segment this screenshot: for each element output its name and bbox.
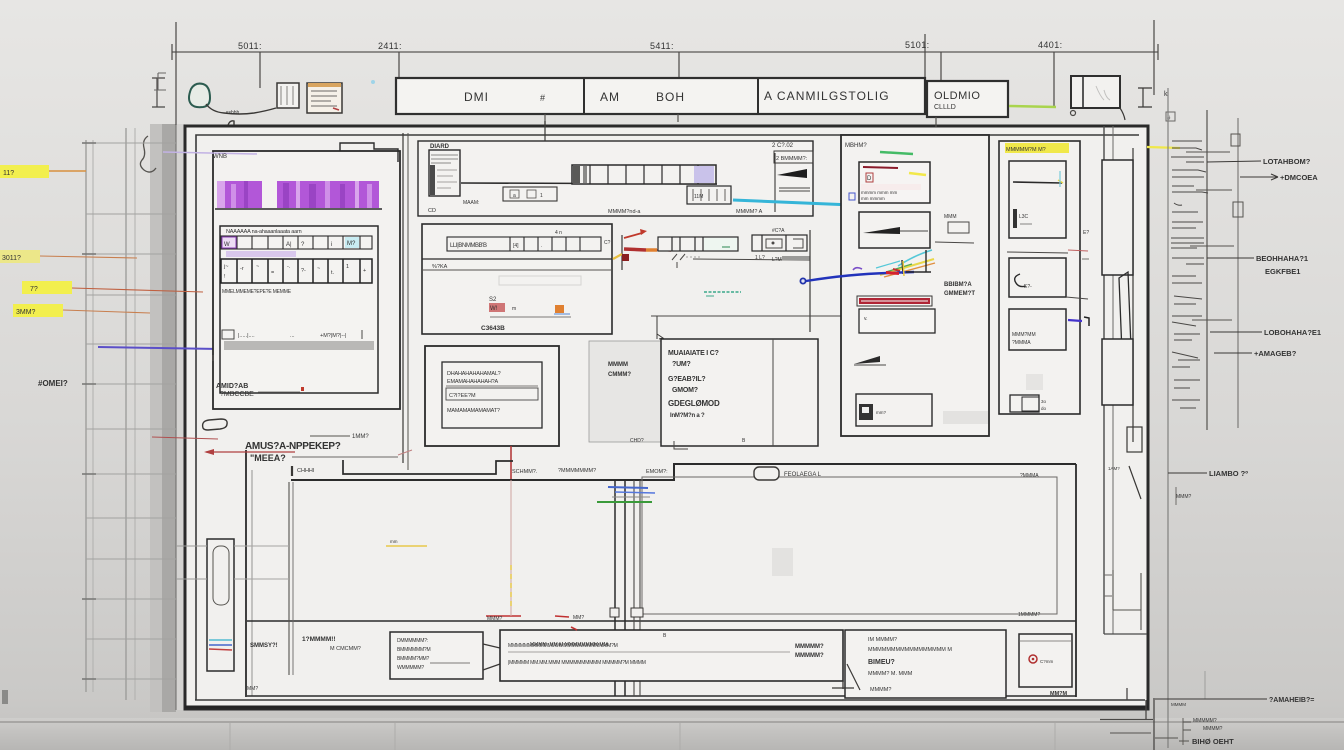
svg-text:L?M: L?M: [772, 257, 782, 263]
svg-text:MMMM? A: MMMM? A: [736, 209, 763, 215]
svg-text:LOBOHAHA?E1: LOBOHAHA?E1: [1264, 328, 1321, 337]
svg-text:7?: 7?: [30, 286, 38, 293]
svg-text:GDEGLØMOD: GDEGLØMOD: [668, 399, 720, 408]
svg-text:5011:: 5011:: [238, 41, 262, 51]
svg-text:CHHHI: CHHHI: [297, 468, 315, 474]
svg-text:CLLLD: CLLLD: [934, 104, 956, 111]
svg-text:2 BMMMM?:: 2 BMMMM?:: [776, 156, 808, 162]
svg-text:?-: ?-: [301, 268, 306, 274]
svg-text:MMMM: MMMM: [1171, 702, 1186, 707]
svg-text:[4]: [4]: [513, 243, 519, 249]
svg-text:1MM?: 1MM?: [352, 434, 369, 440]
svg-text:sshhh: sshhh: [226, 110, 240, 116]
svg-text:mm: mm: [390, 539, 398, 544]
svg-text:MMMMMMMMMMMMMMMMM M: MMMMMMMMMMMMMMMMM M: [868, 647, 952, 653]
svg-text:MMM?MM: MMM?MM: [1012, 332, 1036, 338]
svg-text:1: 1: [540, 193, 543, 199]
svg-text:=: =: [271, 270, 274, 276]
svg-text:|MMMMM MM.MM.MMM MMMMMMMMMM M: |MMMMM MM.MM.MMM MMMMMMMMMM MMMMM?M MMMM: [508, 660, 646, 666]
svg-text:MUAIAIATE I C?: MUAIAIATE I C?: [668, 350, 719, 357]
svg-text:11?: 11?: [3, 170, 14, 177]
svg-text:AM: AM: [600, 90, 620, 104]
svg-text:%?KA: %?KA: [432, 264, 448, 270]
svg-text:BMMMMMM?M: BMMMMMM?M: [397, 647, 431, 653]
svg-text:mmmm mmm mm: mmmm mmm mm: [861, 190, 897, 195]
svg-text:DHAHAHAHAHAMAL?: DHAHAHAHAHAMAL?: [447, 371, 501, 377]
svg-text:+: +: [363, 268, 366, 274]
svg-text:j~: j~: [223, 264, 228, 270]
svg-text:BEOHHAHA?1: BEOHHAHA?1: [1256, 254, 1308, 263]
svg-text:a: a: [513, 193, 516, 199]
svg-text:C?: C?: [604, 240, 611, 246]
svg-text:M CMCMM?: M CMCMM?: [330, 646, 361, 652]
svg-text:~: ~: [256, 264, 259, 270]
svg-text:MM?: MM?: [573, 615, 584, 621]
svg-text:MMMM?nd-a: MMMM?nd-a: [608, 209, 641, 215]
svg-text:3011?: 3011?: [2, 255, 21, 262]
svg-text:MMMM: MMMM: [608, 362, 628, 368]
svg-text:MBHM?: MBHM?: [845, 143, 867, 149]
svg-text:G?EAB?IL?: G?EAB?IL?: [668, 376, 705, 383]
svg-text:-r: -r: [240, 266, 244, 272]
svg-text:MM?M: MM?M: [1050, 691, 1068, 697]
svg-text:+M?|M?|--|: +M?|M?|--|: [320, 333, 346, 339]
svg-text:SCHMM?.: SCHMM?.: [512, 469, 538, 475]
svg-text:MMMM? M. MMM: MMMM? M. MMM: [868, 671, 913, 677]
svg-text:5101:: 5101:: [905, 40, 930, 50]
svg-text:C3643B: C3643B: [481, 325, 505, 332]
svg-text:WNB: WNB: [213, 154, 227, 160]
svg-text:+DMCOEA: +DMCOEA: [1280, 173, 1318, 182]
svg-text:#C?A: #C?A: [772, 228, 785, 234]
svg-text:4401:: 4401:: [1038, 40, 1063, 50]
svg-text:DIARD: DIARD: [430, 144, 450, 150]
svg-text:C?I?EE?M: C?I?EE?M: [449, 393, 476, 399]
svg-text:?AMAHEIB?=: ?AMAHEIB?=: [1269, 697, 1314, 704]
svg-text:MM?: MM?: [247, 686, 258, 692]
svg-text:CHD?: CHD?: [630, 438, 644, 444]
svg-text:"MEEA?: "MEEA?: [250, 453, 286, 463]
svg-text:1 L?: 1 L?: [755, 255, 765, 261]
svg-text:MAAM:: MAAM:: [463, 200, 479, 206]
svg-text:E?: E?: [1083, 230, 1089, 236]
svg-text:EGKFBE1: EGKFBE1: [1265, 267, 1300, 276]
svg-text:OLDMIO: OLDMIO: [934, 90, 980, 102]
svg-text:E?-: E?-: [1024, 284, 1032, 290]
svg-text:v.: v.: [864, 316, 868, 322]
svg-text:LIAMBO ?º: LIAMBO ?º: [1209, 469, 1248, 478]
svg-text:GMMEM?T: GMMEM?T: [944, 291, 975, 297]
svg-text:BOH: BOH: [656, 90, 685, 104]
svg-text:?UM?: ?UM?: [672, 361, 691, 368]
svg-text:11M: 11M: [694, 194, 703, 200]
svg-text:EMAMAHAHAHAH?A: EMAMAHAHAHAH?A: [447, 379, 499, 385]
svg-text:mm mmmm: mm mmmm: [861, 196, 885, 201]
svg-text:MMELMMEME?EPE?E MEMME: MMELMMEME?EPE?E MEMME: [222, 289, 292, 295]
svg-text:MMMMM?: MMMMM?: [1193, 718, 1217, 724]
svg-text:1: 1: [346, 264, 349, 270]
svg-text:EMOM?:: EMOM?:: [646, 469, 668, 475]
svg-text:A|: A|: [286, 242, 292, 248]
svg-text:MMMMM?: MMMMM?: [795, 644, 824, 650]
svg-text:IM MMMM?: IM MMMM?: [868, 637, 897, 643]
svg-text:?MBCCBE: ?MBCCBE: [220, 391, 254, 398]
svg-text:NAAAAAA na-ahaaanlaaata aarn: NAAAAAA na-ahaaanlaaata aarn: [226, 229, 302, 235]
svg-text:t.: t.: [331, 270, 335, 276]
svg-text:.: .: [541, 243, 542, 249]
svg-text:WMMMMM?: WMMMMM?: [397, 665, 424, 671]
svg-text:MMMM?: MMMM?: [870, 687, 891, 693]
svg-text:CD: CD: [428, 208, 436, 214]
svg-text:AMUS?A-NPPEKEP?: AMUS?A-NPPEKEP?: [245, 441, 341, 452]
svg-text:MMMMM?: MMMMM?: [795, 653, 824, 659]
svg-text:?MMMA: ?MMMA: [1020, 473, 1039, 479]
svg-text:5411:: 5411:: [650, 41, 674, 51]
svg-text:A CANMILGSTOLIG: A CANMILGSTOLIG: [764, 89, 890, 103]
svg-text:BBIBM?A: BBIBM?A: [944, 282, 972, 288]
svg-text:SMMSY?!: SMMSY?!: [250, 643, 278, 649]
svg-text:3o: 3o: [1041, 399, 1047, 404]
svg-text:InM?M?n a ?: InM?M?n a ?: [670, 413, 705, 419]
svg-text:?MMMMMMM?: ?MMMMMMM?: [558, 468, 596, 474]
svg-text:MAMAMAMAMAMAT?: MAMAMAMAMAMAT?: [447, 408, 500, 414]
svg-text:BIMEU?: BIMEU?: [868, 659, 895, 666]
svg-text:W: W: [224, 242, 230, 248]
svg-text:C?mm: C?mm: [1040, 659, 1054, 664]
svg-text:-.: -.: [287, 264, 291, 270]
svg-text:m: m: [512, 306, 516, 312]
svg-text:D: D: [867, 176, 872, 182]
svg-text:2411:: 2411:: [378, 41, 402, 51]
svg-text:GMOM?: GMOM?: [672, 387, 698, 394]
svg-text:MMM?: MMM?: [1176, 494, 1191, 500]
svg-text:...: ...: [290, 333, 295, 339]
svg-text:FEOLAEGA L: FEOLAEGA L: [784, 472, 822, 478]
svg-text:4 n: 4 n: [555, 230, 562, 236]
svg-text:MMMM?: MMMM?: [1203, 726, 1223, 732]
svg-text:LLI|BNMMBB'B: LLI|BNMMBB'B: [450, 243, 487, 249]
svg-text:DMI: DMI: [464, 90, 489, 104]
svg-text:S2: S2: [489, 297, 497, 303]
svg-text:1AM?: 1AM?: [1108, 466, 1120, 471]
svg-text:AMID?AB: AMID?AB: [216, 383, 248, 390]
svg-text:do: do: [1041, 406, 1047, 411]
svg-text:MMMMM?M M?: MMMMM?M M?: [1006, 147, 1046, 153]
svg-text:#OMEI?: #OMEI?: [38, 379, 68, 388]
svg-text:~: ~: [317, 266, 320, 272]
svg-text:#: #: [540, 93, 545, 103]
svg-text:?MMMA: ?MMMA: [1012, 340, 1031, 346]
svg-text:CMMM?: CMMM?: [608, 372, 631, 378]
svg-text:+AMAGEB?: +AMAGEB?: [1254, 349, 1297, 358]
svg-text:1MMMM?: 1MMMM?: [1018, 612, 1040, 618]
svg-text:MMM?: MMM?: [487, 616, 502, 622]
svg-text:MMM: MMM: [944, 214, 957, 220]
svg-text:2 C?.02: 2 C?.02: [772, 143, 794, 149]
svg-text:mm?: mm?: [876, 410, 886, 415]
svg-text:MMMM. MM M MMMMMMMM MM.: MMMM. MM M MMMMMMMM MM.: [530, 642, 609, 648]
svg-text:DMMMMMM?:: DMMMMMM?:: [397, 638, 428, 644]
svg-text:|.....|....: |.....|....: [238, 333, 255, 339]
svg-text:L3C: L3C: [1019, 214, 1029, 220]
svg-text:W!: W!: [490, 306, 498, 312]
svg-text:3MM?: 3MM?: [16, 309, 36, 316]
svg-text:i: i: [331, 242, 332, 248]
svg-text:BIHØ OEHT: BIHØ OEHT: [1192, 737, 1234, 746]
svg-text:k: k: [1164, 91, 1168, 98]
svg-text:BMMMM?MM?: BMMMM?MM?: [397, 656, 430, 662]
svg-text:LOTAHBOM?: LOTAHBOM?: [1263, 157, 1311, 166]
svg-text:M?: M?: [347, 241, 356, 247]
svg-text:1?MMMM!!: 1?MMMM!!: [302, 636, 336, 643]
